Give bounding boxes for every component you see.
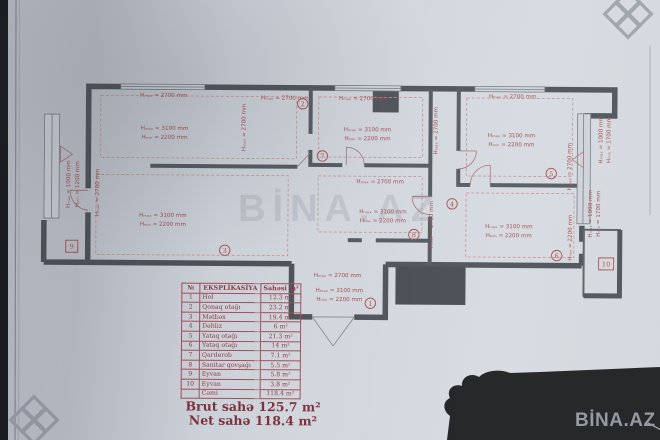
listing-photo: Hₘₐₓ = 2700 mm Hₘₐₓ = 2700 mm Hₘₐₓ = 270…: [0, 0, 660, 440]
row-num: 8: [181, 360, 199, 370]
row-name: Yataq otağı: [199, 341, 260, 351]
row-num: 1: [182, 293, 200, 303]
row-area: 6 m²: [261, 322, 301, 332]
explication-table: № EKSPLİKASİYA Sahəsi m² 1Hol12.3 m² 2Qo…: [181, 283, 302, 400]
row-area: 5.5 m²: [260, 360, 300, 370]
row-area: 23.2 m²: [261, 303, 301, 313]
row-name: Hol: [200, 293, 261, 303]
dim-label: Hₘₐₓ = 2700 mm: [314, 273, 362, 279]
row-area: 3.8 m²: [260, 380, 300, 390]
room-number: 9: [70, 243, 74, 251]
row-num: 3: [182, 312, 200, 322]
room-number: 10: [602, 260, 610, 268]
faint-center-watermark: BİNA.AZ: [238, 188, 441, 231]
row-area: 5.8 m²: [260, 370, 300, 380]
dim-label: Hₘₐₓ = 3100 mm: [141, 126, 189, 132]
dim-label: Hₘₐₓ = 2700 mm: [95, 169, 101, 217]
dim-label: Hₘₐₓ = 2700 mm: [567, 143, 573, 191]
dim-label: Hₘᵢₙ = 2200 mm: [141, 135, 187, 141]
dim-label: Hₘₐₓ = 2700 mm: [356, 179, 404, 185]
row-area: 19.4 m²: [261, 312, 301, 322]
dim-label: Hₘᵢₙ = 2200 mm: [316, 297, 362, 303]
dim-label: Hₘₐₓ = 1000 mm: [66, 160, 72, 208]
row-num: 7: [181, 350, 199, 360]
row-name: Yataq otağı: [200, 331, 261, 341]
row-num: 5: [182, 331, 200, 341]
dim-label: Hₘₐₓ = 2700 mm: [489, 94, 537, 100]
room-number: 7: [320, 152, 324, 160]
total-label: Cəmi: [199, 389, 260, 399]
row-name: Qonaq otağı: [200, 302, 261, 312]
dim-label: Hₘᵢₙ = 2200 mm: [568, 215, 574, 261]
dim-label: Hₘₐₓ = 3100 mm: [344, 127, 392, 133]
row-num: 9: [181, 369, 199, 379]
row-name: Mətbəx: [200, 312, 261, 322]
dim-label: Hₘₐₓ = 3100 mm: [139, 213, 187, 219]
row-name: Eyvan: [199, 379, 260, 389]
dim-label: Hₘᵢₙ = 2200 mm: [140, 222, 186, 228]
dim-label: Hₘᵢₙ = 2200 mm: [488, 142, 534, 148]
row-num: 2: [182, 302, 200, 312]
dim-label: Hₘₐₓ = 2700 mm: [433, 107, 439, 155]
dim-label: Hₘᵢₙ = 1700 mm: [596, 191, 602, 237]
corner-ornament-top-right: [605, 0, 652, 37]
row-name: Dəhliz: [200, 322, 261, 332]
dim-label: Hₘₐₓ = 1000 mm: [588, 190, 594, 238]
row-num: 6: [181, 341, 199, 351]
col-header-name: EKSPLİKASİYA: [200, 283, 261, 293]
stairwell-block: [395, 266, 465, 304]
room-number: 3: [223, 247, 227, 255]
table-total-row: Cəmi 118.4 m²: [181, 389, 300, 399]
row-name: Eyvan: [199, 370, 260, 380]
dim-label: Hₘᵢₙ = 1700 mm: [606, 117, 612, 163]
row-area: 7.1 m²: [260, 351, 300, 361]
room-number: 5: [549, 170, 553, 178]
dim-label: Hₘᵢₙ = 2200 mm: [344, 136, 390, 142]
row-name: Qarderob: [199, 350, 260, 360]
row-area: 12.3 m²: [261, 293, 301, 303]
row-num: 10: [181, 379, 199, 389]
dim-label: Hₘₐₓ = 2700 mm: [241, 104, 247, 152]
dim-label: Hₘᵢₙ = 2200 mm: [486, 233, 532, 239]
dim-label: Hₘₐₓ = 2700 mm: [339, 96, 387, 102]
brut-area-text: Brut sahə 125.7 m²: [155, 399, 351, 414]
dim-label: Hₘᵢₙ = 1200 mm: [75, 161, 81, 207]
room-number: 2: [301, 100, 305, 108]
col-header-num: №: [182, 283, 200, 293]
room-number: 8: [412, 231, 416, 239]
bina-az-watermark: BİNA.AZ: [575, 410, 656, 432]
dim-label: Hₘₐₓ = 3100 mm: [488, 133, 536, 139]
col-header-area: Sahəsi m²: [261, 284, 301, 294]
row-name: Sanitar qovşağı: [199, 360, 260, 370]
room-number: 6: [555, 252, 559, 260]
corner-ornament-bottom-left: [11, 397, 58, 440]
room-number: 4: [450, 200, 454, 208]
area-summary: Brut sahə 125.7 m² Net sahə 118.4 m²: [155, 399, 351, 427]
total-num: [181, 389, 199, 399]
row-area: 14 m²: [260, 341, 300, 351]
entry-door-swing: [312, 317, 354, 346]
row-num: 4: [182, 321, 200, 331]
room-number: 1: [368, 300, 372, 308]
total-area: 118.4 m²: [260, 389, 300, 399]
dim-label: Hₘₐₓ = 1000 mm: [598, 116, 604, 164]
dim-label: Hₘₐₓ = 3100 mm: [316, 288, 364, 294]
dim-label: Hₘₐₓ = 2700 mm: [140, 93, 188, 99]
row-area: 21.3 m²: [260, 332, 300, 342]
dim-label: Hₘₐₓ = 3100 mm: [485, 224, 533, 230]
net-area-text: Net sahə 118.4 m²: [155, 413, 351, 428]
